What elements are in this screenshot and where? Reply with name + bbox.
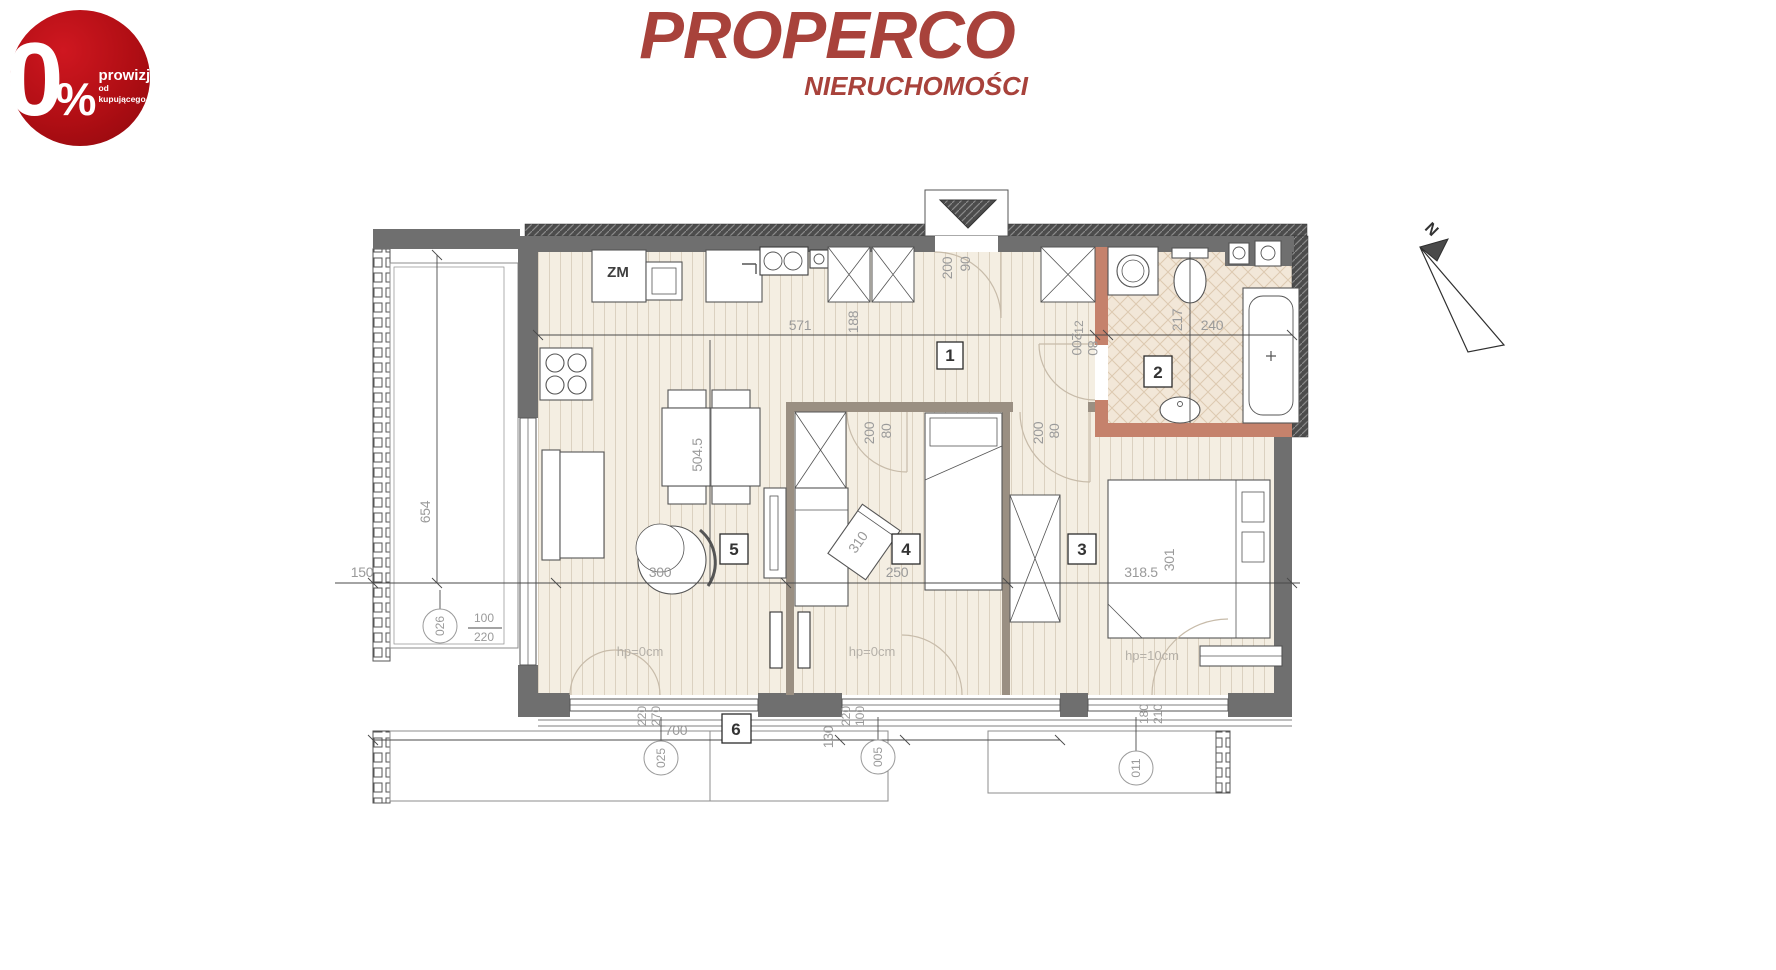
svg-text:1: 1 <box>945 346 954 365</box>
svg-text:025: 025 <box>654 748 668 768</box>
wall-hatch-top <box>525 224 1307 236</box>
dim-hall-depth: 188 <box>845 310 861 333</box>
dim-dw2-a: 220 <box>839 706 853 726</box>
room-box-6: 6 <box>722 714 751 743</box>
logo-subtitle: NIERUCHOMOŚCI <box>612 71 1042 102</box>
wardrobe-room3 <box>1010 495 1060 622</box>
wall-bottom-seg2 <box>758 693 842 717</box>
badge-content: 0 % prowizji od kupującego <box>6 34 155 128</box>
wall-bottom-seg1 <box>538 693 570 717</box>
door-leaf-b <box>798 612 810 668</box>
bed-double <box>1108 480 1270 638</box>
door-leaf-a <box>770 612 782 668</box>
wall-bath-bottom <box>1095 423 1292 437</box>
wall-bath-left-b <box>1095 400 1108 423</box>
bath-sink-top-2 <box>1255 241 1281 266</box>
upper-cabinet <box>706 250 762 302</box>
badge-line1: prowizji <box>98 68 154 83</box>
dim-bath-jamb: 12 <box>1072 320 1086 334</box>
shelf <box>764 488 786 578</box>
svg-text:5: 5 <box>729 540 738 559</box>
bathtub-icon <box>1243 288 1299 423</box>
dim-balcony-width: 150 <box>351 564 374 580</box>
badge-line2: od kupującego <box>98 83 154 105</box>
dim-room4-door: 80 <box>878 423 894 438</box>
dim-dw2-b: 100 <box>853 706 867 726</box>
dim-bath-width: 240 <box>1201 317 1224 333</box>
svg-text:2: 2 <box>1153 363 1162 382</box>
dim-living-width: 300 <box>649 564 672 580</box>
wall-left-bottom <box>518 665 538 717</box>
terrace-bottom <box>373 731 1230 803</box>
dim-room4-door-wall: 200 <box>861 421 877 444</box>
small-appliance <box>810 250 828 268</box>
ref-window-terrace: 025 <box>644 741 678 775</box>
badge-zero: 0 <box>6 34 60 128</box>
page: 0 % prowizji od kupującego PROPERCO NIER… <box>0 0 1776 970</box>
dim-room3-door-wall: 200 <box>1030 421 1046 444</box>
dim-bath-depth: 217 <box>1169 308 1185 331</box>
parapet-right: hp=10cm <box>1125 648 1179 663</box>
dim-dw3-b: 210 <box>1151 704 1165 724</box>
ref-window-left: 026 <box>423 609 457 643</box>
dim-terrace-width: 700 <box>665 722 688 738</box>
cooktop-icon <box>540 348 592 400</box>
badge-percent: % <box>56 72 97 126</box>
wardrobe-room4 <box>795 412 846 488</box>
parapet-left: hp=0cm <box>617 644 664 659</box>
floor-plan: 654 150 300 250 318.5 301 571 188 240 21… <box>0 0 1776 970</box>
wall-left-kitchen <box>518 249 538 418</box>
dim-balcony-length: 654 <box>417 500 433 523</box>
washing-machine-icon <box>1108 247 1158 295</box>
badge-text: prowizji od kupującego <box>98 68 154 105</box>
svg-text:005: 005 <box>871 747 885 767</box>
balcony-left <box>373 249 518 661</box>
dim-window-w: 100 <box>474 611 494 625</box>
svg-text:4: 4 <box>901 540 911 559</box>
dim-bath-door: 80 <box>1085 341 1101 356</box>
logo-title: PROPERCO <box>612 2 1042 69</box>
room-box-2: 2 <box>1144 356 1172 387</box>
dim-dw1-b: 270 <box>649 706 663 726</box>
ref-door-terrace: 005 <box>861 740 895 774</box>
zero-commission-badge: 0 % prowizji od kupującego <box>10 10 150 146</box>
ref-window-right: 011 <box>1119 751 1153 785</box>
room-box-3: 3 <box>1068 534 1096 564</box>
room-box-1: 1 <box>937 342 963 369</box>
wall-bottom-seg4 <box>1228 693 1292 717</box>
dim-dw1-a: 220 <box>635 706 649 726</box>
dim-bath-door-wall: 200 <box>1069 333 1085 356</box>
wardrobe-hall-1 <box>828 247 870 302</box>
north-label: N <box>1421 220 1441 240</box>
kitchen-unit-label: ZM <box>607 264 629 281</box>
bench <box>1200 646 1282 666</box>
washbasin-icon <box>1160 397 1200 423</box>
entrance-gap <box>935 236 998 252</box>
dim-entry-door: 90 <box>957 256 973 271</box>
wall-hall-bottom-jamb <box>1088 402 1096 412</box>
dim-window-h: 220 <box>474 630 494 644</box>
svg-text:026: 026 <box>433 616 447 636</box>
wardrobe-hall-2 <box>872 247 914 302</box>
svg-text:011: 011 <box>1129 758 1143 777</box>
terrace2-railing-icon <box>1216 731 1230 793</box>
dim-entry-wall: 200 <box>939 256 955 279</box>
dim-room3-width: 318.5 <box>1124 564 1158 580</box>
dim-room4-width: 250 <box>886 564 909 580</box>
terrace-railing-icon <box>373 731 390 803</box>
dim-room3-length: 301 <box>1161 548 1177 571</box>
dim-room3-door: 80 <box>1046 423 1062 438</box>
room-box-4: 4 <box>892 534 920 564</box>
wall-hall-bottom <box>788 402 1013 412</box>
dim-living-length: 504.5 <box>689 438 705 472</box>
dim-hall-width: 571 <box>789 317 812 333</box>
parapet-mid: hp=0cm <box>849 644 896 659</box>
company-logo: PROPERCO NIERUCHOMOŚCI <box>612 2 1042 102</box>
room-box-5: 5 <box>720 534 748 564</box>
bed-single <box>925 413 1002 590</box>
wall-room4-3 <box>1002 412 1010 695</box>
north-arrow-icon: N <box>1420 220 1504 352</box>
entrance <box>925 190 1008 252</box>
wall-top-balcony <box>373 229 520 249</box>
wardrobe-hall-3 <box>1041 247 1095 302</box>
dim-terrace-depth: 130 <box>820 725 836 748</box>
wall-bath-left-a <box>1095 247 1108 345</box>
svg-text:3: 3 <box>1077 540 1086 559</box>
bath-sink-top-1 <box>1229 243 1249 264</box>
dim-dw3-a: 180 <box>1137 704 1151 724</box>
balcony-railing-icon <box>373 249 390 661</box>
sofa <box>542 450 604 560</box>
wall-bottom-seg3 <box>1060 693 1088 717</box>
svg-text:6: 6 <box>731 720 740 739</box>
wall-room5-4 <box>786 402 794 695</box>
